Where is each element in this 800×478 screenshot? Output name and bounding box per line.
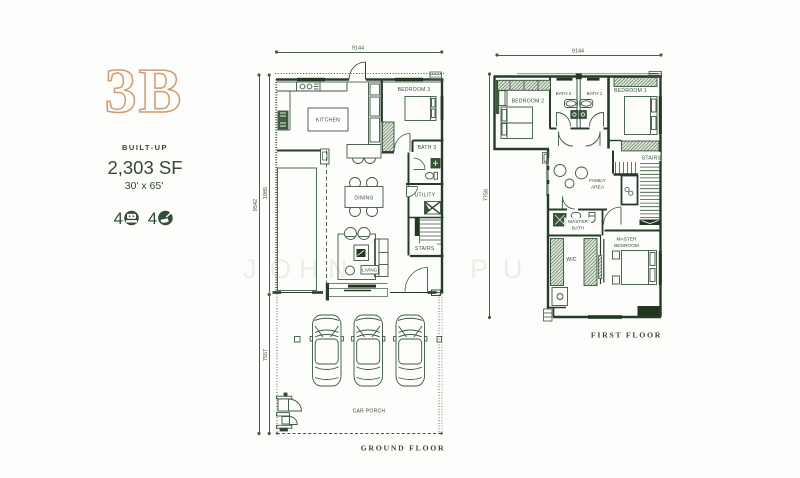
svg-text:CAR PORCH: CAR PORCH [353,408,386,414]
svg-text:GROUND FLOOR: GROUND FLOOR [361,444,446,453]
svg-text:7557: 7557 [263,349,269,361]
svg-text:UTILITY: UTILITY [415,193,436,199]
svg-text:J: J [243,254,257,284]
svg-text:STAIRS: STAIRS [642,155,662,161]
svg-text:1985: 1985 [263,187,269,199]
svg-text:FIRST FLOOR: FIRST FLOOR [591,331,662,340]
svg-text:BATH 3: BATH 3 [418,145,437,151]
svg-text:DINING: DINING [354,196,373,202]
svg-text:BEDROOM: BEDROOM [614,243,639,249]
svg-text:H: H [299,254,319,284]
svg-text:STAIRS: STAIRS [415,246,435,252]
svg-text:MASTER: MASTER [568,219,589,225]
svg-text:BEDROOM 3: BEDROOM 3 [398,87,431,93]
svg-text:KITCHEN: KITCHEN [316,118,340,124]
svg-text:BEDROOM 2: BEDROOM 2 [512,99,545,105]
svg-text:9144: 9144 [352,46,364,52]
svg-text:7756: 7756 [483,189,489,201]
svg-text:U: U [503,254,523,284]
svg-text:4: 4 [148,209,157,228]
svg-text:2,303 SF: 2,303 SF [107,157,182,178]
svg-text:9542: 9542 [253,199,259,211]
svg-text:BEDROOM 1: BEDROOM 1 [614,88,647,94]
svg-text:P: P [470,254,488,284]
svg-text:BATH 1: BATH 1 [587,91,603,96]
svg-text:LIVING: LIVING [362,268,377,273]
svg-text:BUILT-UP: BUILT-UP [122,143,168,152]
svg-text:FAMILY: FAMILY [589,178,607,184]
svg-text:30' x 65': 30' x 65' [125,180,163,192]
svg-text:BATH 2: BATH 2 [556,91,572,96]
svg-text:3B: 3B [105,55,184,126]
svg-text:4: 4 [114,209,123,228]
svg-text:BATH: BATH [572,226,585,232]
svg-text:AREA: AREA [591,185,605,191]
svg-text:WIC: WIC [566,257,577,263]
svg-text:9144: 9144 [572,49,584,55]
svg-text:MASTER: MASTER [617,237,638,243]
svg-text:O: O [270,254,291,284]
